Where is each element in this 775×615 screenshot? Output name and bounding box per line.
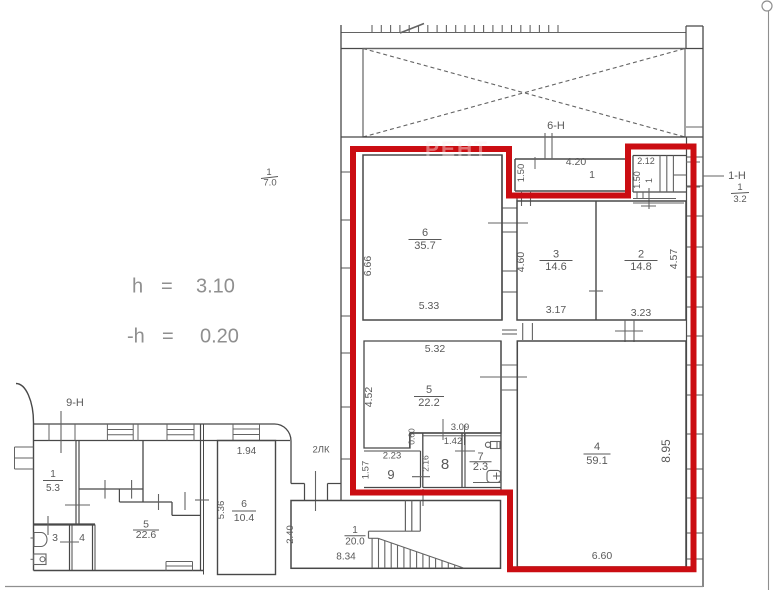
svg-text:2.16: 2.16 — [420, 455, 430, 472]
svg-text:4.20: 4.20 — [566, 156, 587, 168]
svg-text:1: 1 — [644, 178, 654, 183]
svg-text:4.52: 4.52 — [363, 387, 375, 408]
svg-text:2.3: 2.3 — [473, 461, 488, 473]
svg-text:5.3: 5.3 — [46, 483, 60, 494]
svg-text:9-Н: 9-Н — [66, 397, 84, 409]
svg-text:14.6: 14.6 — [545, 261, 566, 273]
svg-text:5.32: 5.32 — [425, 343, 446, 355]
svg-text:1.57: 1.57 — [360, 461, 371, 480]
svg-text:1.50: 1.50 — [516, 164, 527, 183]
svg-text:8: 8 — [441, 456, 449, 473]
svg-text:6.60: 6.60 — [592, 550, 613, 562]
svg-text:9: 9 — [387, 467, 394, 482]
svg-text:2.23: 2.23 — [383, 451, 402, 462]
svg-text:1: 1 — [352, 525, 358, 536]
svg-text:3: 3 — [553, 249, 559, 261]
svg-text:6: 6 — [422, 227, 428, 239]
svg-text:5: 5 — [426, 384, 432, 396]
svg-text:1.50: 1.50 — [632, 171, 642, 189]
svg-text:2.40: 2.40 — [285, 525, 296, 544]
svg-text:8.34: 8.34 — [336, 552, 356, 563]
svg-text:7.0: 7.0 — [263, 178, 276, 189]
svg-text:3.09: 3.09 — [451, 422, 470, 433]
svg-text:10.4: 10.4 — [234, 512, 255, 524]
svg-text:6.66: 6.66 — [362, 256, 374, 277]
svg-text:3.17: 3.17 — [546, 304, 567, 316]
svg-text:4.60: 4.60 — [515, 252, 527, 273]
svg-text:1: 1 — [50, 469, 56, 480]
svg-text:59.1: 59.1 — [586, 455, 607, 467]
svg-text:1: 1 — [266, 167, 271, 178]
svg-text:22.6: 22.6 — [136, 529, 157, 541]
svg-text:4: 4 — [594, 441, 600, 453]
svg-text:8.95: 8.95 — [659, 439, 673, 463]
svg-text:5.33: 5.33 — [419, 300, 440, 312]
svg-text:22.2: 22.2 — [418, 397, 439, 409]
svg-text:4: 4 — [79, 532, 85, 544]
svg-text:1.94: 1.94 — [237, 446, 257, 457]
svg-text:1: 1 — [737, 182, 742, 193]
svg-text:35.7: 35.7 — [414, 240, 435, 252]
svg-text:3.23: 3.23 — [631, 307, 652, 319]
svg-text:4.57: 4.57 — [668, 249, 680, 270]
svg-text:3: 3 — [52, 532, 58, 544]
svg-text:0.60: 0.60 — [407, 428, 417, 445]
svg-text:5.36: 5.36 — [216, 501, 227, 520]
svg-text:6: 6 — [241, 498, 247, 510]
svg-text:1: 1 — [589, 169, 595, 181]
svg-text:РЕНТ: РЕНТ — [425, 138, 489, 161]
svg-text:1-Н: 1-Н — [728, 170, 746, 182]
svg-text:1.42: 1.42 — [444, 436, 463, 447]
svg-text:h=3.10: h=3.10 — [132, 276, 235, 298]
svg-text:2.12: 2.12 — [637, 156, 655, 166]
svg-text:3.2: 3.2 — [733, 194, 746, 205]
svg-text:6-Н: 6-Н — [547, 120, 565, 132]
svg-text:-h=0.20: -h=0.20 — [127, 326, 239, 348]
svg-text:14.8: 14.8 — [630, 261, 651, 273]
svg-text:2: 2 — [638, 249, 644, 261]
svg-text:20.0: 20.0 — [345, 537, 365, 548]
svg-text:2ЛК: 2ЛК — [312, 445, 330, 456]
